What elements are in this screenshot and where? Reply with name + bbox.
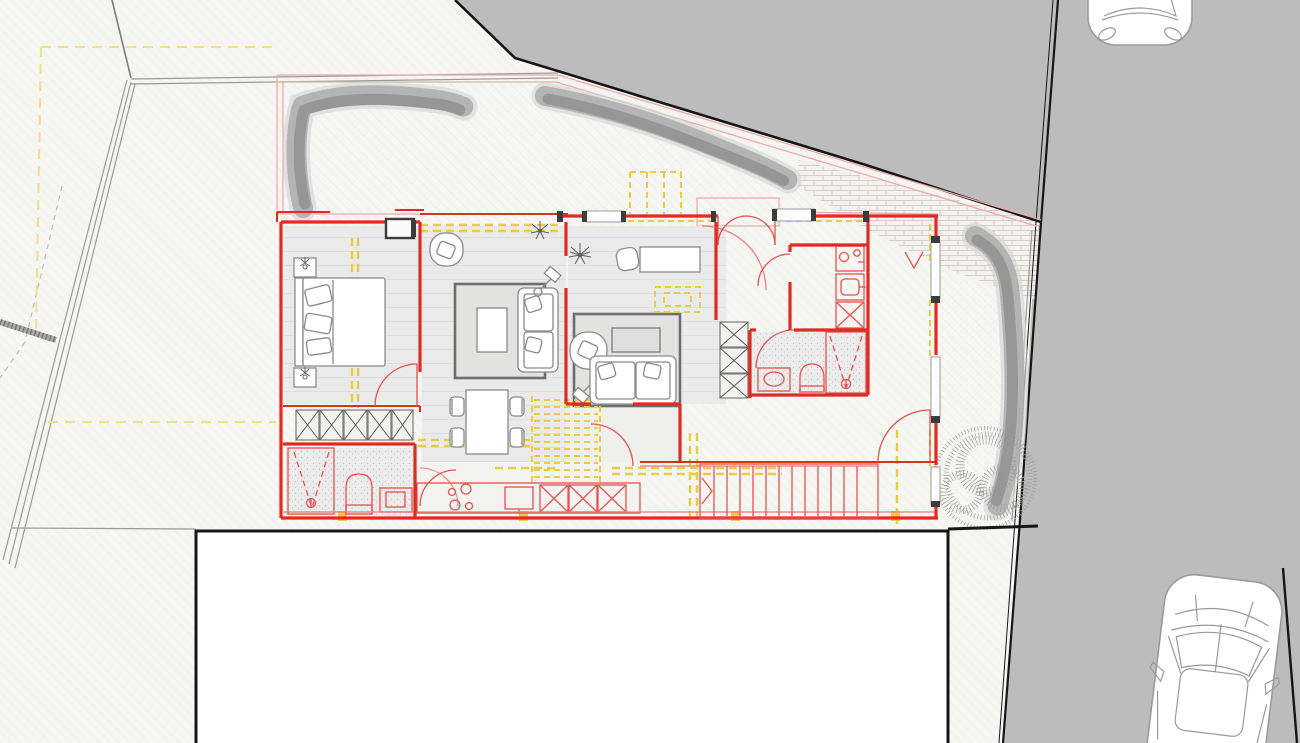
dining-chair (510, 397, 524, 416)
house-plan (277, 172, 940, 524)
dining-chair (510, 428, 524, 447)
laundry-sink (836, 246, 864, 271)
stair-direction-arrow (702, 478, 712, 504)
closet-column (720, 322, 748, 398)
site-boundary-dashed (36, 47, 278, 422)
neighbor-building (196, 526, 1038, 743)
dining-table (466, 390, 508, 454)
cabinet-x (836, 302, 864, 328)
sofa (590, 356, 676, 404)
wardrobe-row (296, 410, 413, 440)
double-bed (295, 278, 385, 366)
car-top (1088, 0, 1192, 45)
coffee-table (477, 308, 507, 352)
sofa (518, 288, 558, 372)
desk (615, 246, 700, 272)
coffee-table (612, 328, 660, 352)
armchair (430, 233, 463, 266)
dining-chair (450, 428, 464, 447)
site-plan-drawing (0, 0, 1300, 743)
washing-machine (836, 274, 866, 300)
laundry (836, 246, 866, 328)
dining-chair (450, 397, 464, 416)
stairs-new (700, 464, 878, 518)
